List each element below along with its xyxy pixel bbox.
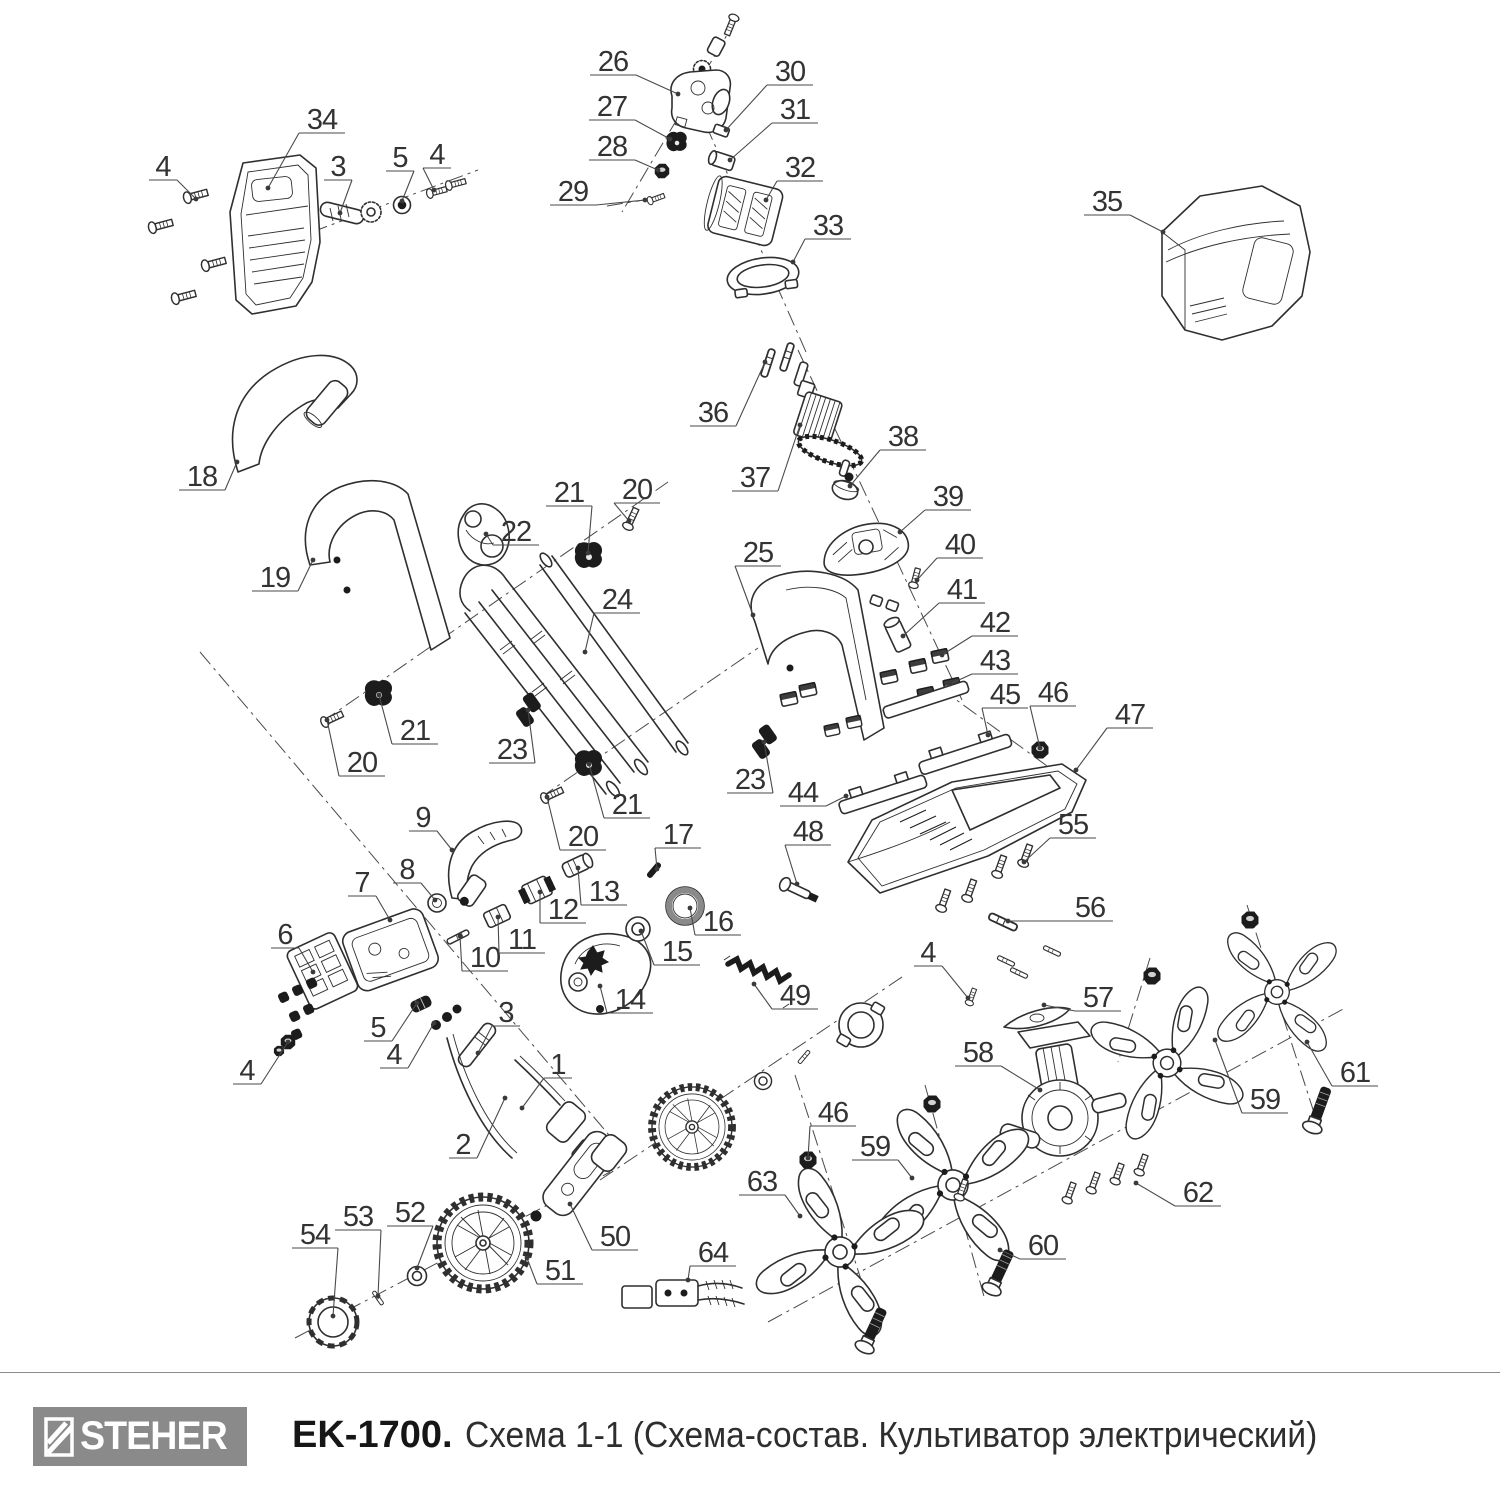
- leader-line: [785, 1195, 800, 1216]
- part-number-label: 33: [813, 210, 843, 242]
- leader-dot: [1006, 919, 1011, 924]
- part-number-label: 15: [662, 936, 692, 968]
- part-number-label: 55: [1058, 809, 1088, 841]
- part-number-label: 51: [545, 1255, 575, 1287]
- part-number-label: 36: [698, 397, 728, 429]
- drawing-title: EK-1700. Схема 1-1 (Схема-состав. Культи…: [292, 1403, 1381, 1467]
- part-8-ring: [428, 894, 446, 912]
- leader-dot: [688, 906, 693, 911]
- leader-line: [423, 168, 434, 190]
- leader-dot: [388, 918, 393, 923]
- leader-dot: [848, 484, 853, 489]
- part-39-fan-housing: [819, 518, 912, 580]
- leader-dot: [763, 360, 768, 365]
- part-number-label: 26: [598, 46, 628, 78]
- part-number-label: 30: [775, 56, 805, 88]
- part-number-label: 5: [392, 142, 407, 174]
- part-61-tine: [1214, 929, 1340, 1055]
- part-9-grip-lever: [449, 821, 522, 909]
- part-number-label: 7: [354, 867, 369, 899]
- leader-dot: [450, 848, 455, 853]
- part-number-label: 31: [780, 94, 810, 126]
- leader-dot: [432, 188, 437, 193]
- part-24-folding-handle: [460, 551, 690, 798]
- part-number-label: 23: [735, 764, 765, 796]
- part-number-label: 46: [1038, 677, 1068, 709]
- part-35-motor-cover: [1162, 186, 1310, 340]
- part-13-connector: [561, 852, 595, 878]
- part-number-label: 14: [615, 984, 646, 1016]
- part-25-right-handlebar: [751, 571, 884, 740]
- leader-line: [522, 1078, 544, 1108]
- part-number-label: 22: [501, 516, 531, 548]
- part-42-nuts: [909, 648, 949, 673]
- leader-dot: [266, 186, 271, 191]
- part-number-label: 64: [698, 1237, 729, 1269]
- leader-dot: [655, 867, 660, 872]
- leader-line: [898, 1160, 912, 1178]
- part-number-label: 47: [1115, 699, 1145, 731]
- part-number-label: 61: [1340, 1057, 1370, 1089]
- part-number-label: 19: [260, 562, 290, 594]
- leader-line: [1136, 1183, 1175, 1206]
- leader-line: [225, 462, 237, 490]
- part-number-label: 54: [300, 1219, 331, 1251]
- part-number-label: 58: [963, 1037, 993, 1069]
- part-number-label: 48: [793, 816, 823, 848]
- part-number-label: 46: [818, 1097, 848, 1129]
- part-number-label: 9: [415, 802, 430, 834]
- leader-line: [421, 883, 435, 900]
- leader-dot: [484, 532, 489, 537]
- part-number-label: 8: [399, 854, 414, 886]
- leader-dot: [235, 460, 240, 465]
- leader-line: [585, 613, 594, 652]
- schematic-page: 1233444445567891011121314151617181920202…: [0, 0, 1500, 1500]
- part-32-stator: [700, 173, 784, 247]
- leader-dot: [415, 1266, 420, 1271]
- part-40-screw: [908, 567, 923, 589]
- part-64-cable-connector: [622, 1280, 744, 1308]
- part-number-label: 13: [589, 876, 619, 908]
- leader-line: [578, 868, 581, 905]
- leader-line: [726, 85, 767, 130]
- leader-dot: [898, 530, 903, 535]
- part-51-wheel: [652, 1087, 732, 1167]
- part-41-sleeve: [883, 615, 912, 653]
- leader-dot: [400, 199, 405, 204]
- leader-line: [900, 510, 925, 532]
- part-number-label: 62: [1183, 1177, 1213, 1209]
- part-number-label: 27: [597, 91, 627, 123]
- leader-dot: [538, 890, 543, 895]
- part-19-left-handlebar: [305, 481, 450, 650]
- steher-logo: STEHER: [33, 1407, 247, 1466]
- part-number-label: 20: [622, 474, 652, 506]
- part-4-washers: [432, 1005, 462, 1030]
- rail-upper: [882, 680, 969, 719]
- part-number-label: 4: [920, 937, 936, 969]
- part-number-label: 5: [370, 1012, 385, 1044]
- leader-dot: [1161, 230, 1166, 235]
- part-33-ring: [725, 253, 801, 299]
- leader-dot: [415, 1001, 420, 1006]
- leader-dot: [586, 551, 591, 556]
- leader-line: [392, 1003, 417, 1041]
- leader-dot: [724, 128, 729, 133]
- part-5-connector: [410, 995, 433, 1013]
- leader-line: [327, 720, 339, 776]
- part-number-label: 4: [429, 139, 445, 171]
- leader-line: [942, 636, 972, 655]
- leader-line: [942, 966, 968, 998]
- leader-dot: [762, 740, 767, 745]
- part-54-hub-cap: [309, 1298, 357, 1346]
- part-number-label: 20: [347, 747, 377, 779]
- leader-dot: [764, 198, 769, 203]
- leader-dot: [286, 1040, 291, 1045]
- part-29-screw: [646, 192, 666, 206]
- part-50-wheel-bracket: [531, 1127, 630, 1221]
- part-number-label: 11: [508, 924, 536, 956]
- leader-dot: [338, 211, 343, 216]
- leader-dot: [376, 1294, 381, 1299]
- part-number-label: 59: [860, 1131, 890, 1163]
- scheme-caption: Схема 1-1 (Схема-состав. Культиватор эле…: [465, 1414, 1317, 1456]
- part-number-label: 2: [455, 1129, 470, 1161]
- leader-line: [635, 160, 658, 170]
- leader-dot: [751, 613, 756, 618]
- part-number-label: 34: [307, 104, 338, 136]
- leader-dot: [844, 794, 849, 799]
- part-number-label: 35: [1092, 186, 1122, 218]
- leader-dot: [377, 693, 382, 698]
- leader-dot: [526, 708, 531, 713]
- nut: [1144, 968, 1160, 984]
- leader-dot: [1042, 1003, 1047, 1008]
- leader-line: [547, 797, 560, 850]
- leader-dot: [520, 1106, 525, 1111]
- leader-dot: [986, 733, 991, 738]
- part-number-label: 23: [497, 734, 527, 766]
- part-number-label: 45: [990, 679, 1020, 711]
- part-37-armature: [793, 361, 865, 481]
- part-number-label: 3: [330, 151, 345, 183]
- leader-dot: [331, 1314, 336, 1319]
- leader-dot: [639, 929, 644, 934]
- part-number-label: 56: [1075, 892, 1105, 924]
- part-number-label: 38: [888, 421, 918, 453]
- part-number-label: 25: [743, 537, 773, 569]
- leader-dot: [1074, 768, 1079, 773]
- leader-dot: [668, 137, 673, 142]
- part-20-bolt: [319, 709, 345, 729]
- leader-line: [793, 239, 805, 262]
- pin: [798, 1050, 811, 1064]
- part-48-bolt: [778, 876, 820, 906]
- leader-line: [982, 708, 988, 735]
- part-number-label: 17: [663, 819, 693, 851]
- part-number-label: 18: [187, 461, 217, 493]
- part-number-label: 63: [747, 1166, 777, 1198]
- leader-line: [1130, 215, 1163, 232]
- part-number-label: 39: [933, 481, 963, 513]
- leader-dot: [1022, 860, 1027, 865]
- part-number-label: 4: [386, 1039, 402, 1071]
- part-number-label: 43: [980, 645, 1010, 677]
- leader-line: [378, 1230, 381, 1296]
- leader-dot: [1134, 1181, 1139, 1186]
- part-number-label: 28: [597, 131, 627, 163]
- part-number-label: 29: [558, 176, 588, 208]
- part-number-label: 21: [612, 789, 642, 821]
- part-number-label: 44: [788, 777, 819, 809]
- part-number-label: 3: [498, 997, 513, 1029]
- leader-line: [460, 936, 462, 971]
- leader-line: [778, 425, 800, 491]
- part-number-label: 21: [554, 477, 584, 509]
- leader-dot: [568, 1202, 573, 1207]
- leader-dot: [194, 197, 199, 202]
- part-number-label: 59: [1250, 1084, 1280, 1116]
- leader-dot: [901, 634, 906, 639]
- part-45-rail: [916, 726, 1013, 775]
- part-47-shield: [848, 764, 1086, 893]
- part-26-switch-housing: [671, 13, 740, 133]
- leader-dot: [496, 915, 501, 920]
- leader-dot: [583, 650, 588, 655]
- leader-line: [754, 984, 772, 1009]
- part-number-label: 42: [980, 607, 1010, 639]
- leader-line: [635, 120, 670, 139]
- contact-buttons: [278, 977, 318, 1040]
- leader-dot: [325, 718, 330, 723]
- part-56-pin: [988, 913, 1018, 932]
- leader-line: [408, 1023, 434, 1068]
- part-number-label: 49: [780, 980, 810, 1012]
- part-number-label: 20: [568, 821, 598, 853]
- part-51-wheel: [437, 1197, 529, 1289]
- leader-dot: [728, 158, 733, 163]
- part-number-label: 52: [395, 1197, 425, 1229]
- title-block: STEHER EK-1700. Схема 1-1 (Схема-состав.…: [0, 1372, 1500, 1500]
- leader-line: [735, 566, 753, 615]
- part-number-label: 60: [1028, 1230, 1058, 1262]
- leader-dot: [311, 970, 316, 975]
- part-number-label: 32: [785, 152, 815, 184]
- leader-dot: [433, 898, 438, 903]
- leader-dot: [476, 1051, 481, 1056]
- bearing-holder: [836, 1002, 885, 1048]
- leader-line: [736, 362, 765, 426]
- part-18-upper-handle: [233, 355, 357, 472]
- part-3-tube: [456, 1021, 498, 1069]
- part-number-label: 4: [155, 151, 171, 183]
- leader-dot: [458, 934, 463, 939]
- leader-dot: [311, 558, 316, 563]
- leader-dot: [998, 1248, 1003, 1253]
- part-number-label: 50: [600, 1221, 630, 1253]
- leader-dot: [791, 260, 796, 265]
- leader-dot: [432, 1021, 437, 1026]
- part-number-label: 40: [945, 529, 975, 561]
- leader-line: [527, 1258, 537, 1284]
- leader-dot: [798, 1214, 803, 1219]
- part-number-label: 21: [400, 715, 430, 747]
- part-number-label: 4: [239, 1055, 255, 1087]
- part-16-ring: [666, 887, 704, 925]
- leader-dot: [752, 982, 757, 987]
- leader-dot: [1038, 746, 1043, 751]
- leader-dot: [545, 795, 550, 800]
- steher-logo-text: STEHER: [80, 1414, 227, 1459]
- leader-dot: [798, 423, 803, 428]
- leader-line: [417, 1226, 433, 1268]
- part-20-bolt: [539, 785, 565, 805]
- model-number: EK-1700.: [292, 1414, 453, 1457]
- part-number-label: 16: [703, 906, 733, 938]
- bolt: [1301, 1085, 1336, 1136]
- leader-line: [903, 603, 939, 636]
- part-number-label: 1: [550, 1049, 565, 1081]
- part-number-label: 24: [602, 584, 633, 616]
- part-number-label: 57: [1083, 982, 1113, 1014]
- leader-line: [1030, 706, 1040, 748]
- leader-line: [376, 896, 390, 920]
- part-number-label: 41: [947, 574, 977, 606]
- leader-dot: [686, 1278, 691, 1283]
- leader-dot: [1038, 1088, 1043, 1093]
- leader-dot: [966, 996, 971, 1001]
- part-38-bearing: [830, 477, 860, 502]
- leader-line: [1001, 1066, 1040, 1090]
- leader-dot: [525, 1256, 530, 1261]
- part-20-bolt: [621, 506, 641, 532]
- leader-dot: [910, 1176, 915, 1181]
- exploded-parts-diagram: 1233444445567891011121314151617181920202…: [0, 0, 1500, 1372]
- leader-dot: [1305, 1040, 1310, 1045]
- leader-dot: [1213, 1038, 1218, 1043]
- leader-dot: [587, 762, 592, 767]
- part-27-clamp: [667, 132, 687, 151]
- leader-dot: [656, 168, 661, 173]
- leader-dot: [627, 519, 632, 524]
- nut: [1242, 912, 1258, 928]
- leader-line: [570, 1204, 592, 1250]
- part-number-label: 10: [470, 942, 500, 974]
- nut: [924, 1096, 940, 1112]
- leader-dot: [795, 882, 800, 887]
- part-3-shaft: [319, 201, 381, 225]
- leader-dot: [676, 92, 681, 97]
- leader-dot: [948, 682, 953, 687]
- leader-dot: [598, 984, 603, 989]
- part-number-label: 6: [277, 919, 292, 951]
- part-number-label: 37: [740, 462, 770, 494]
- part-15-ring: [626, 917, 650, 941]
- leader-line: [437, 831, 452, 850]
- steher-logo-icon: [44, 1417, 74, 1457]
- part-number-label: 53: [343, 1201, 373, 1233]
- part-number-label: 12: [548, 894, 578, 926]
- leader-dot: [576, 866, 581, 871]
- leader-line: [298, 560, 313, 591]
- leader-line: [730, 123, 772, 160]
- leader-dot: [503, 1096, 508, 1101]
- leader-dot: [806, 1156, 811, 1161]
- leader-line: [1076, 728, 1107, 770]
- leader-dot: [643, 198, 648, 203]
- leader-dot: [915, 578, 920, 583]
- part-17-pin: [647, 862, 662, 878]
- part-34-side-cover: [230, 155, 320, 314]
- small-pins: [997, 945, 1061, 978]
- leader-dot: [940, 653, 945, 658]
- screws-4-top-left: [147, 187, 227, 306]
- washer: [754, 1072, 771, 1089]
